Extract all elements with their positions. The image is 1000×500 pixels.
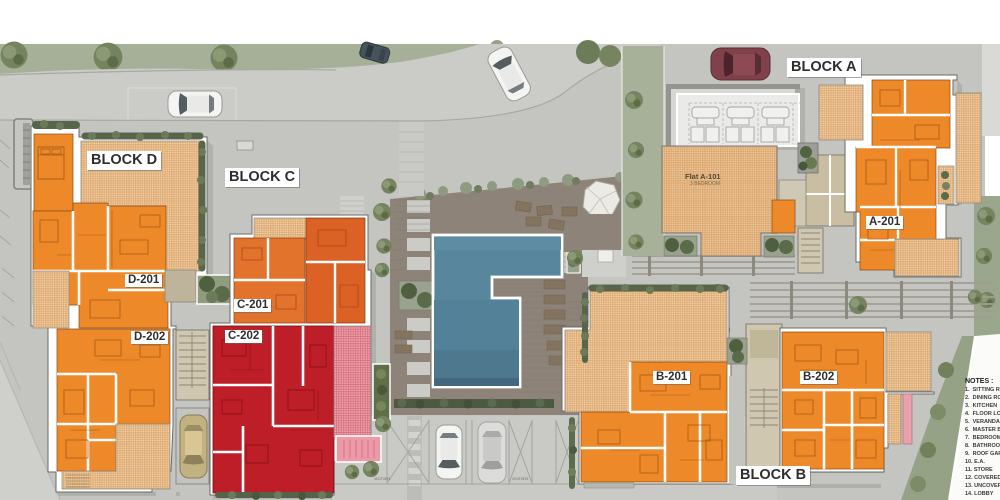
svg-text:VISITORS: VISITORS xyxy=(374,477,391,481)
svg-text:VISITORS: VISITORS xyxy=(512,477,529,481)
